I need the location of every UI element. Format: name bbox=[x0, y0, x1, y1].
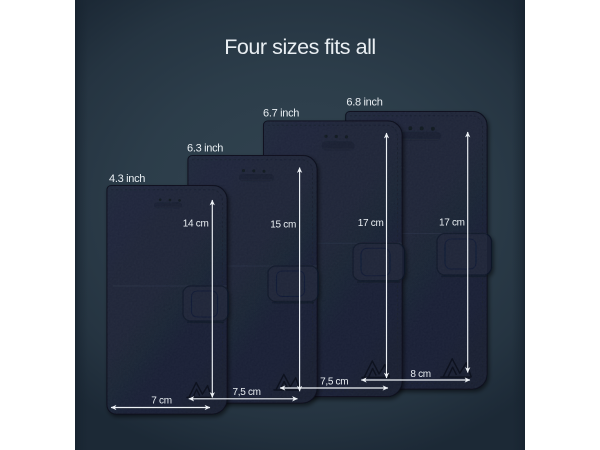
svg-text:7,5 cm: 7,5 cm bbox=[232, 387, 260, 398]
svg-text:7,5 cm: 7,5 cm bbox=[320, 377, 348, 388]
svg-text:4.3 inch: 4.3 inch bbox=[109, 173, 145, 185]
svg-text:6.3 inch: 6.3 inch bbox=[187, 142, 223, 154]
svg-text:8 cm: 8 cm bbox=[410, 369, 430, 380]
svg-text:6.7 inch: 6.7 inch bbox=[263, 108, 299, 120]
svg-text:17 cm: 17 cm bbox=[358, 218, 384, 229]
svg-text:Four sizes fits all: Four sizes fits all bbox=[224, 35, 376, 59]
svg-text:14 cm: 14 cm bbox=[183, 219, 209, 230]
svg-text:15 cm: 15 cm bbox=[270, 219, 296, 230]
svg-text:17 cm: 17 cm bbox=[439, 218, 465, 229]
svg-text:7 cm: 7 cm bbox=[151, 395, 171, 406]
svg-text:6.8 inch: 6.8 inch bbox=[346, 97, 382, 109]
